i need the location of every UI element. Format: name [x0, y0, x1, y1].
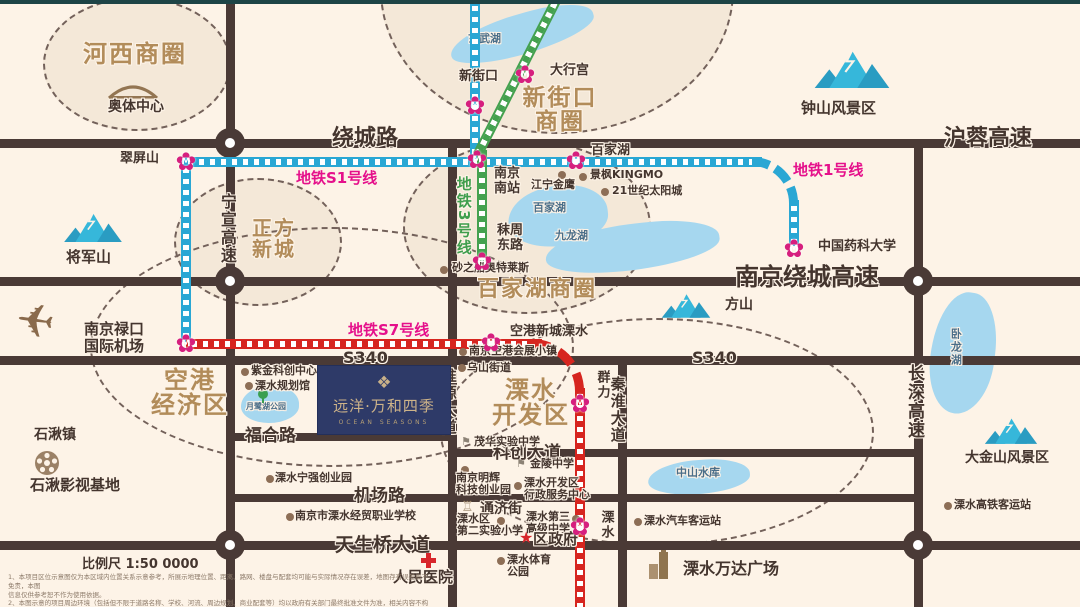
disclaimer-line: 2、本图示意的项目周边环境（包括但不限于道路名称、学校、河流、周边规划、商业配套…: [8, 599, 432, 607]
metro-station-icon: ✿M: [567, 514, 593, 540]
poi-dot: [286, 513, 294, 521]
disclaimer-line: 1、本项目区位示意图仅为本区域内位置关系示意参考，所展示地理位置、距离、路网、楼…: [8, 573, 432, 591]
metro-m-glyph: M: [512, 62, 538, 88]
lake-label: 九龙湖: [555, 230, 588, 242]
poi-label: 溧水宁强创业园: [275, 472, 352, 484]
metro-station-icon: ✿M: [173, 149, 199, 175]
project-logo-card: ❖ 远洋·万和四季 OCEAN SEASONS: [318, 366, 450, 434]
scenic-area-label: 方山: [725, 298, 753, 314]
metro-m-glyph: M: [173, 149, 199, 175]
poi-dot: [245, 382, 253, 390]
metro-m-glyph: M: [173, 331, 199, 357]
scenic-area-label: 大金山风景区: [965, 451, 1049, 467]
poi-label: 紫金科创中心: [251, 365, 317, 377]
metro-station-icon: ✿M: [462, 93, 488, 119]
metro-station-icon: ✿M: [478, 330, 504, 356]
road-name-label: 天生桥大道: [335, 535, 430, 556]
rail-line1-curve: [752, 157, 798, 203]
road-name-label: S340: [343, 349, 388, 367]
district-label: 新街口商圈: [505, 86, 615, 134]
poi-dot: [497, 557, 505, 565]
project-logo-title: 远洋·万和四季: [333, 395, 435, 416]
poi-label: 溧水开发区行政服务中心: [524, 477, 590, 502]
metro-station-label: 秣周东路: [497, 224, 523, 253]
metro-station-label: 溧水: [598, 510, 613, 540]
poi-dot: [458, 364, 466, 372]
lake-label: 百家湖: [533, 202, 566, 214]
road-name-label: 沪蓉高速: [944, 127, 1032, 152]
disclaimer-line: 信息仅供参考恕不作为使用依据。: [8, 591, 432, 600]
poi-dot: [440, 266, 448, 274]
metro-station-label: 南京南站: [494, 167, 520, 196]
poi-label: 金陵中学: [530, 458, 574, 470]
project-logo-icon: ❖: [376, 375, 391, 392]
metro-station-label: 中国药科大学: [818, 240, 896, 255]
road-name-label: 长深高速: [904, 364, 923, 440]
poi-label: 溧水高铁客运站: [954, 499, 1031, 511]
metro-station-label: 大行宫: [550, 64, 589, 79]
reel-icon: [34, 450, 60, 479]
road-junction: [215, 128, 245, 158]
mountain-icon: [62, 208, 124, 245]
metro-m-glyph: M: [567, 391, 593, 417]
district-label: 百家湖商圈: [477, 278, 597, 301]
district-label: 空港经济区: [145, 368, 235, 418]
road-name-label: 南京绕城高速: [735, 264, 879, 291]
metro-station-icon: ✿M: [567, 391, 593, 417]
poi-label: 南京明辉科技创业园: [456, 472, 511, 497]
poi-label: 江宁金鹰: [531, 179, 575, 191]
poi-label: 茂华实验中学: [474, 436, 540, 448]
mountain-icon: [660, 289, 712, 321]
road-name-label: 机场路: [354, 487, 405, 506]
building-icon: [648, 550, 672, 583]
road-name-label: 宁宣高速: [218, 193, 236, 265]
metro-station-label: 新街口: [459, 70, 498, 85]
poi-label: 奥体中心: [108, 100, 164, 116]
metro-station-icon: ✿M: [173, 331, 199, 357]
scenic-area-label: 将军山: [66, 249, 111, 266]
poi-label: 溧水汽车客运站: [644, 515, 721, 527]
rail-s1-south: [181, 162, 191, 342]
poi-dot: [459, 348, 467, 356]
metro-m-glyph: M: [781, 236, 807, 262]
poi-dot: [266, 475, 274, 483]
poi-label: 21世纪太阳城: [612, 185, 682, 197]
poi-label: 石湫影视基地: [30, 477, 120, 494]
metro-station-icon: ✿M: [781, 236, 807, 262]
metro-m-glyph: M: [563, 148, 589, 174]
map-scale-label: 比例尺 1:50 0000: [82, 553, 199, 572]
poi-label: 南京市溧水经贸职业学校: [295, 510, 416, 522]
road-name-label: 绕城路: [332, 127, 398, 152]
lake-shape: [924, 289, 1002, 418]
metro-line-label: 地铁S7号线: [348, 322, 429, 339]
road-junction: [903, 530, 933, 560]
poi-label: 景枫KINGMO: [590, 169, 663, 181]
mountain-icon: [812, 44, 892, 91]
metro-station-label: 百家湖: [591, 144, 630, 159]
poi-label: 石湫镇: [34, 428, 76, 444]
poi-dot: [241, 368, 249, 376]
metro-station-label: 翠屏山: [120, 152, 159, 167]
district-label: 溧水开发区: [481, 378, 581, 428]
lake-label: 中山水库: [676, 467, 720, 479]
map-layer: 河西商圈新街口商圈正方新城百家湖商圈空港经济区溧水开发区玄武湖百家湖九龙湖卧龙湖…: [0, 0, 1080, 607]
metro-station-icon: ✿M: [464, 147, 490, 173]
metro-line-label: 地铁S1号线: [296, 170, 377, 187]
metro-m-glyph: M: [478, 330, 504, 356]
poi-label: 溧水规划馆: [255, 380, 310, 392]
metro-station-icon: ✿M: [512, 62, 538, 88]
project-logo-subtitle: OCEAN SEASONS: [339, 419, 430, 426]
district-label: 正方新城: [245, 218, 303, 260]
map-canvas: 河西商圈新街口商圈正方新城百家湖商圈空港经济区溧水开发区玄武湖百家湖九龙湖卧龙湖…: [0, 0, 1080, 607]
mountain-icon: [983, 413, 1039, 447]
district-label: 河西商圈: [83, 42, 187, 67]
lake-label: 卧龙湖: [949, 328, 961, 367]
metro-m-glyph: M: [464, 147, 490, 173]
poi-dot: [634, 518, 642, 526]
metro-m-glyph: M: [567, 514, 593, 540]
road-junction: [215, 266, 245, 296]
road-ningxuan-gaosu: [226, 0, 235, 607]
map-disclaimer: 1、本项目区位示意图仅为本区域内位置关系示意参考，所展示地理位置、距离、路网、楼…: [8, 573, 432, 607]
poi-dot: [601, 188, 609, 196]
poi-label: 溧水体育公园: [507, 554, 551, 579]
metro-station-icon: ✿M: [469, 249, 495, 275]
road-junction: [215, 530, 245, 560]
road-name-label: 福合路: [245, 427, 296, 446]
top-border: [0, 0, 1080, 4]
scenic-area-label: 钟山风景区: [801, 100, 876, 117]
airport-plane-icon: ✈: [13, 296, 58, 347]
poi-label: 南京禄口国际机场: [84, 321, 144, 355]
poi-label: 乌山街道: [467, 362, 511, 374]
metro-line-label: 地铁3号线: [455, 176, 472, 256]
metro-station-icon: ✿M: [563, 148, 589, 174]
metro-station-label: 空港新城溧水: [510, 325, 588, 340]
school-flag-icon: ⚑: [461, 436, 471, 447]
road-name-label: 秦淮大道: [609, 376, 626, 444]
school-flag-icon: ⚑: [516, 458, 526, 469]
metro-station-label: 群力: [594, 370, 609, 400]
road-junction: [903, 266, 933, 296]
metro-line-label: 地铁1号线: [793, 162, 863, 179]
poi-dot: [944, 502, 952, 510]
metro-m-glyph: M: [462, 93, 488, 119]
metro-m-glyph: M: [469, 249, 495, 275]
poi-label: 溧水区第二实验小学: [457, 513, 523, 538]
poi-dot: [514, 482, 522, 490]
hospital-cross-icon: [421, 553, 436, 568]
government-star-icon: ★: [519, 530, 533, 546]
poi-label: 溧水万达广场: [683, 560, 779, 578]
road-name-label: S340: [692, 349, 737, 367]
